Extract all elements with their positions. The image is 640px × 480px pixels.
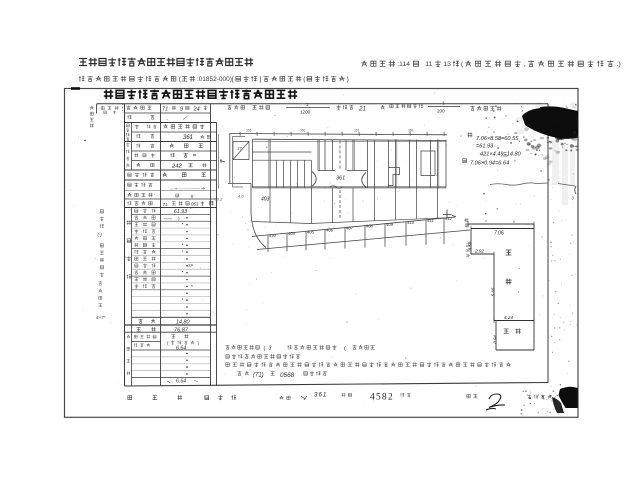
svg-text:71: 71 [162, 106, 168, 112]
svg-text:404: 404 [288, 231, 296, 236]
svg-text::114: :114 [397, 61, 410, 68]
svg-text:407: 407 [346, 226, 354, 231]
svg-text:368: 368 [408, 129, 414, 133]
svg-text:11: 11 [425, 61, 432, 68]
svg-text:7.06×8.58=60.55: 7.06×8.58=60.55 [476, 136, 519, 142]
svg-text:71: 71 [163, 202, 169, 208]
svg-text:37: 37 [237, 146, 242, 151]
svg-text:361: 361 [336, 176, 345, 182]
svg-text:6.64: 6.64 [176, 378, 186, 384]
svg-text:,: , [524, 61, 526, 68]
svg-text:21: 21 [358, 106, 366, 113]
svg-text:7.06×0.94=6.64: 7.06×0.94=6.64 [470, 160, 509, 166]
svg-text:]: ] [260, 76, 262, 83]
svg-text:(: ( [264, 346, 266, 352]
svg-text:60.2: 60.2 [215, 197, 224, 202]
svg-text:053: 053 [191, 202, 199, 207]
svg-text:440: 440 [269, 233, 277, 238]
svg-text:4.24: 4.24 [504, 315, 513, 320]
svg-text:(: ( [344, 346, 346, 352]
svg-text:): ) [347, 76, 349, 83]
svg-text:200: 200 [437, 108, 445, 113]
svg-text:242: 242 [171, 164, 182, 170]
svg-text:1: 1 [442, 101, 445, 106]
svg-text:365: 365 [246, 129, 252, 133]
svg-text:4×7*: 4×7* [96, 315, 106, 320]
svg-text:403: 403 [261, 197, 270, 203]
svg-text:7.06: 7.06 [494, 231, 504, 237]
svg-text:408: 408 [366, 224, 374, 229]
svg-text:410: 410 [407, 220, 415, 225]
svg-text:4.0: 4.0 [238, 194, 244, 199]
svg-text:2.92: 2.92 [474, 249, 484, 254]
svg-text:61.93: 61.93 [174, 209, 187, 215]
svg-text:=61.93: =61.93 [476, 144, 494, 150]
svg-text:411: 411 [427, 218, 434, 223]
svg-text:24: 24 [193, 106, 200, 112]
svg-text:406: 406 [326, 228, 334, 233]
svg-text:14.80: 14.80 [176, 320, 190, 326]
svg-text:412: 412 [445, 216, 453, 221]
svg-text:0568: 0568 [280, 372, 295, 379]
svg-text:1200: 1200 [300, 110, 311, 115]
svg-text:13: 13 [443, 61, 451, 68]
svg-text:(-): (-) [98, 232, 103, 237]
svg-text:4: 4 [464, 218, 466, 222]
svg-text:.): .) [617, 61, 621, 68]
svg-text:9: 9 [180, 106, 183, 112]
svg-text:6.64: 6.64 [176, 345, 186, 351]
svg-text:421×4.49=14.80: 421×4.49=14.80 [480, 152, 522, 158]
svg-text:32: 32 [188, 263, 193, 268]
svg-text:5.65: 5.65 [491, 287, 496, 296]
svg-text:366: 366 [300, 129, 306, 133]
svg-text:361: 361 [314, 392, 327, 399]
svg-text:8: 8 [513, 220, 515, 224]
svg-text:361: 361 [183, 135, 193, 141]
svg-text:3: 3 [269, 346, 272, 352]
svg-text:4.58: 4.58 [468, 241, 473, 250]
svg-text:367: 367 [354, 129, 360, 133]
svg-text:x: x [484, 219, 487, 223]
svg-text:409: 409 [386, 222, 394, 227]
svg-text:(71): (71) [253, 373, 264, 379]
svg-text:1: 1 [306, 102, 309, 107]
svg-text:0.94: 0.94 [493, 335, 498, 344]
svg-text::01852-000)[: :01852-000)[ [197, 76, 234, 83]
svg-text:76.87: 76.87 [174, 327, 189, 333]
svg-text:405: 405 [307, 229, 315, 234]
